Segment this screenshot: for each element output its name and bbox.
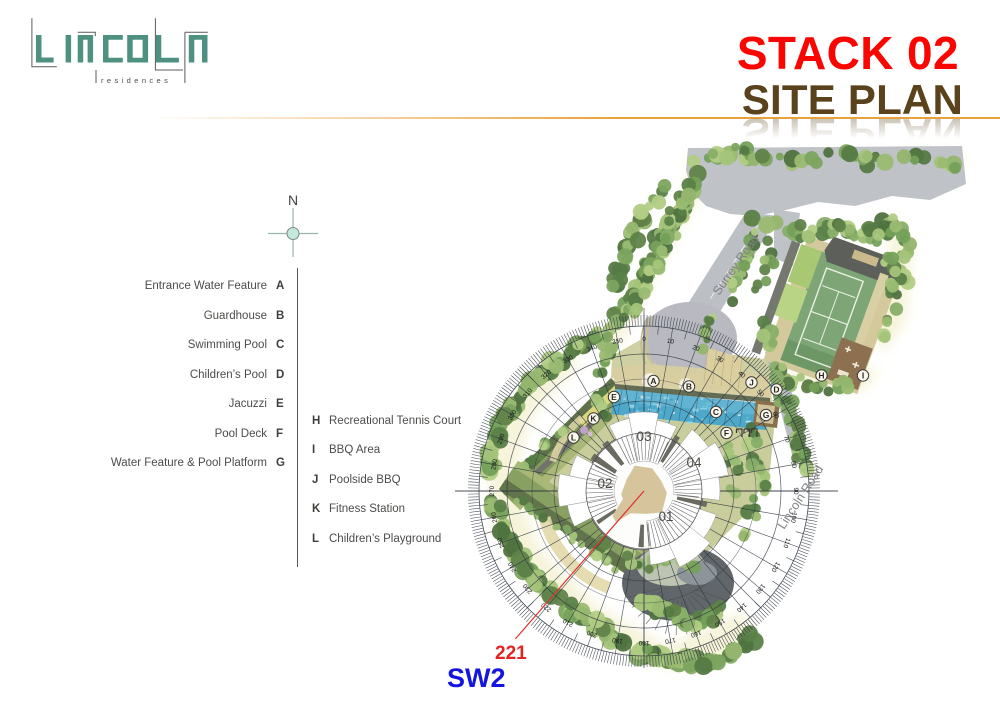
svg-text:120: 120: [769, 560, 781, 573]
svg-text:E: E: [611, 392, 617, 402]
svg-text:350: 350: [612, 337, 624, 346]
svg-text:B: B: [686, 382, 692, 392]
svg-text:G: G: [763, 410, 770, 420]
svg-text:03: 03: [636, 429, 651, 444]
svg-text:H: H: [818, 371, 824, 381]
svg-text:F: F: [724, 428, 729, 438]
svg-text:04: 04: [686, 455, 702, 470]
svg-text:80: 80: [789, 461, 797, 470]
svg-text:residences: residences: [101, 76, 171, 85]
svg-text:0: 0: [642, 336, 646, 343]
svg-text:170: 170: [664, 636, 676, 645]
svg-text:N: N: [288, 192, 298, 208]
svg-text:02: 02: [597, 476, 612, 491]
svg-text:01: 01: [658, 509, 673, 524]
svg-text:270: 270: [489, 485, 496, 496]
svg-text:130: 130: [754, 582, 767, 595]
svg-text:L: L: [571, 433, 576, 443]
svg-text:J: J: [749, 378, 754, 388]
svg-text:I: I: [862, 371, 864, 381]
svg-text:D: D: [773, 385, 779, 395]
svg-text:110: 110: [781, 537, 791, 549]
svg-text:C: C: [713, 407, 719, 417]
svg-text:140: 140: [735, 601, 748, 614]
svg-text:A: A: [650, 376, 656, 386]
svg-text:180: 180: [638, 639, 649, 646]
svg-text:K: K: [590, 414, 597, 424]
